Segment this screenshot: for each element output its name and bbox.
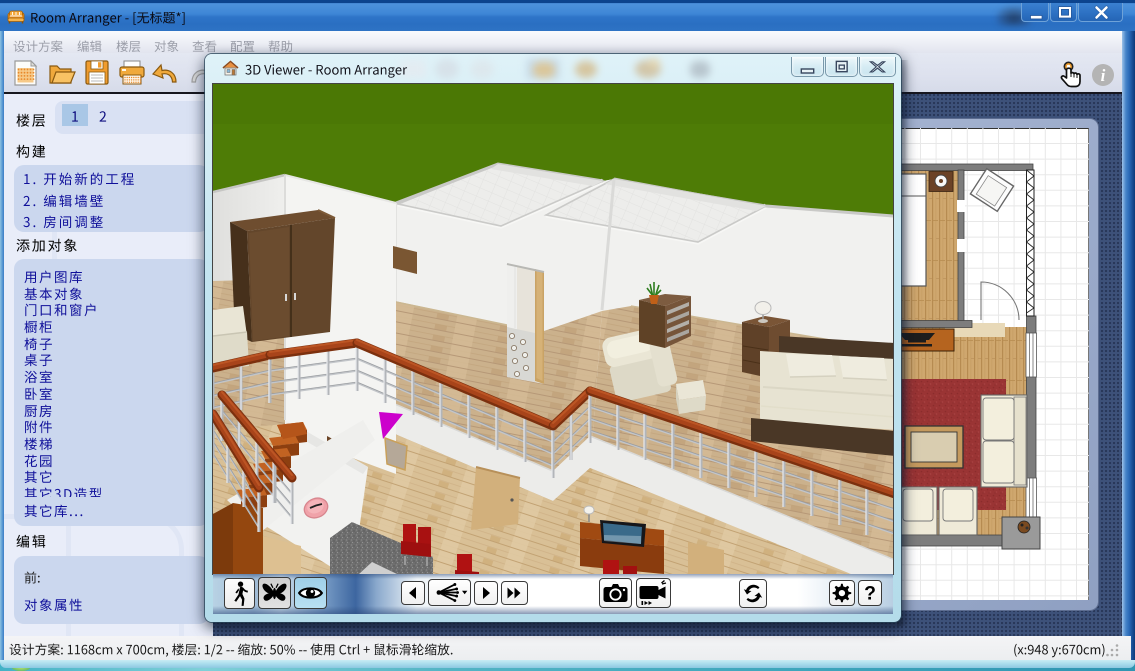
svg-text:?: ? [864,582,876,604]
svg-text:i: i [1101,66,1106,85]
